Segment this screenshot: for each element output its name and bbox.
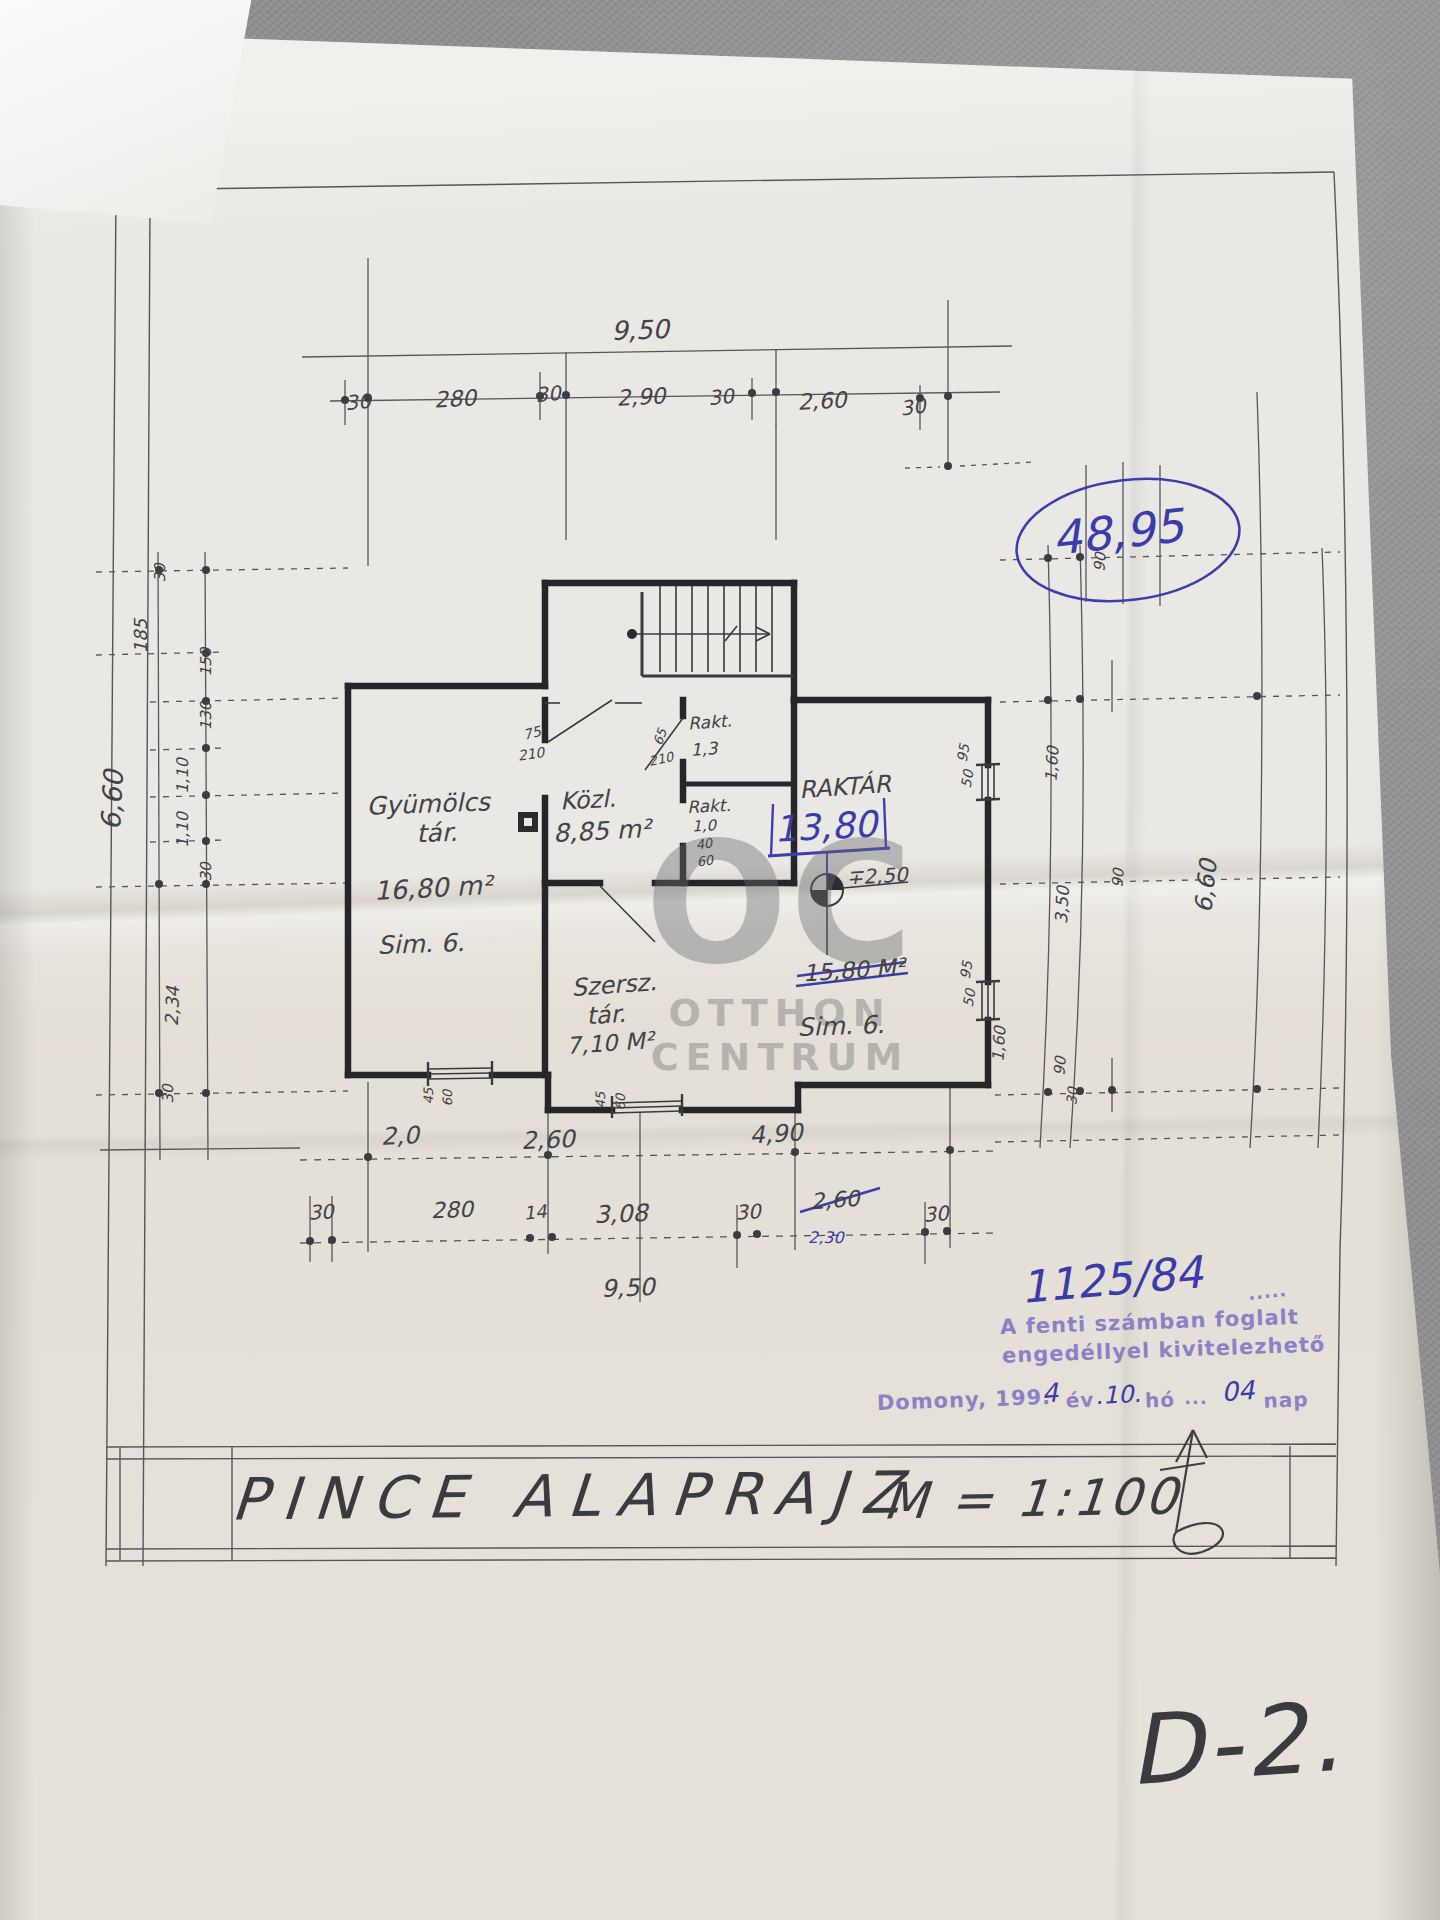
dim-top: 2,60	[797, 387, 847, 415]
dim-bottom: 30	[734, 1199, 761, 1225]
raktar-new-area: 13,80	[773, 803, 878, 849]
stamp-day-handwritten: 04	[1220, 1375, 1255, 1407]
dim-right: 90	[1050, 1056, 1070, 1077]
dim-window: 95	[957, 960, 976, 980]
dim-bottom-crossed: 2,60	[810, 1186, 861, 1214]
dim-window: 45	[421, 1088, 436, 1105]
dim-door: 60	[696, 852, 714, 869]
stamp-year-handwritten: 4	[1041, 1377, 1060, 1408]
room-label-gyumolcs-tar: tár.	[416, 818, 458, 848]
dim-window: 60	[440, 1090, 455, 1107]
dim-left: 130	[197, 702, 215, 731]
room-label-szersz-tar: tár.	[585, 1000, 626, 1031]
photo-of-floor-plan: { "document": { "type": "hand-drawn base…	[0, 0, 1440, 1920]
dim-right: 1,60	[989, 1026, 1010, 1063]
dim-bottom: 30	[922, 1201, 949, 1227]
blueprint-linework	[0, 0, 1440, 1920]
room-label-szersz-tar: Szersz.	[571, 968, 658, 1002]
stamp-ho: hó	[1145, 1387, 1176, 1412]
sheet-code: D-2.	[1124, 1681, 1347, 1808]
dim-bottom: 30	[308, 1199, 335, 1224]
stamp-nap: nap	[1263, 1387, 1309, 1413]
dim-top: 30	[344, 389, 372, 416]
dim-bottom: 280	[431, 1197, 474, 1223]
blueprint-paper-sheet: OC OTTHON CENTRUM 48,95 13,80 2,30 1125/…	[0, 0, 1440, 1920]
dim-right: 3,50	[1051, 886, 1073, 925]
room-floor-raktar: Sim. 6.	[797, 1010, 885, 1042]
dim-right: 30	[1063, 1086, 1080, 1105]
stamp-dots: ···	[1184, 1392, 1208, 1413]
corrected-dimension: 2,30	[808, 1228, 844, 1247]
dim-bottom: 4,90	[748, 1118, 803, 1150]
dim-bottom: 14	[523, 1200, 548, 1223]
dim-left: 30	[151, 563, 169, 582]
dim-top: 30	[534, 381, 562, 408]
dim-window: 95	[954, 743, 973, 763]
stamp-month-handwritten: .10.	[1094, 1380, 1141, 1410]
dim-right-overall: 6,60	[1189, 858, 1222, 914]
stamp-ev: év	[1065, 1388, 1094, 1413]
room-label-rakt-2: Rakt.	[687, 795, 732, 817]
dim-left: 1,10	[173, 812, 192, 848]
dim-window: 45	[593, 1092, 608, 1109]
dim-bottom: 2,60	[521, 1125, 575, 1155]
dim-left: 185	[130, 619, 151, 653]
dim-bottom-overall: 9,50	[601, 1273, 655, 1303]
room-area-rakt-2: 1,0	[692, 816, 717, 835]
dim-door: 40	[695, 835, 713, 852]
dim-left: 30	[159, 1084, 177, 1103]
dim-right: 90	[1108, 868, 1128, 889]
dim-right: 1,60	[1042, 746, 1063, 783]
dim-left: 2,34	[161, 986, 183, 1027]
dim-top-overall: 9,50	[611, 314, 670, 346]
room-label-gyumolcs-tar: Gyümölcs	[366, 787, 490, 820]
dim-left: 1,10	[173, 758, 192, 794]
room-floor-gyumolcs-tar: Sim. 6.	[377, 928, 465, 960]
stamp-dotline: ·····	[1247, 1284, 1288, 1309]
dim-left: 30	[197, 862, 215, 881]
dim-top: 2,90	[616, 383, 666, 411]
dim-window: 50	[960, 988, 979, 1008]
dim-left: 150	[197, 648, 215, 677]
dim-bottom: 3,08	[594, 1199, 648, 1229]
room-area-gyumolcs-tar: 16,80 m²	[373, 870, 493, 906]
drawing-title: PINCE ALAPRAJZ	[229, 1458, 918, 1533]
room-label-rakt-1: Rakt.	[687, 710, 732, 733]
dim-top: 280	[433, 385, 476, 412]
room-area-kozl: 8,85 m²	[552, 814, 651, 848]
dim-top: 30	[707, 384, 735, 411]
chimney-symbol	[518, 812, 538, 832]
drawing-scale: M = 1:100	[881, 1467, 1184, 1530]
room-label-kozl: Közl.	[559, 785, 617, 816]
level-mark-value: ∓2,50	[846, 862, 908, 889]
dim-right: 90	[1090, 552, 1110, 573]
dim-top: 30	[899, 393, 928, 420]
dim-bottom: 2,0	[380, 1121, 419, 1150]
dim-window: 50	[958, 769, 977, 789]
room-area-rakt-1: 1,3	[690, 738, 718, 760]
dim-window: 60	[613, 1094, 628, 1111]
dim-left-overall: 6,60	[95, 769, 129, 831]
